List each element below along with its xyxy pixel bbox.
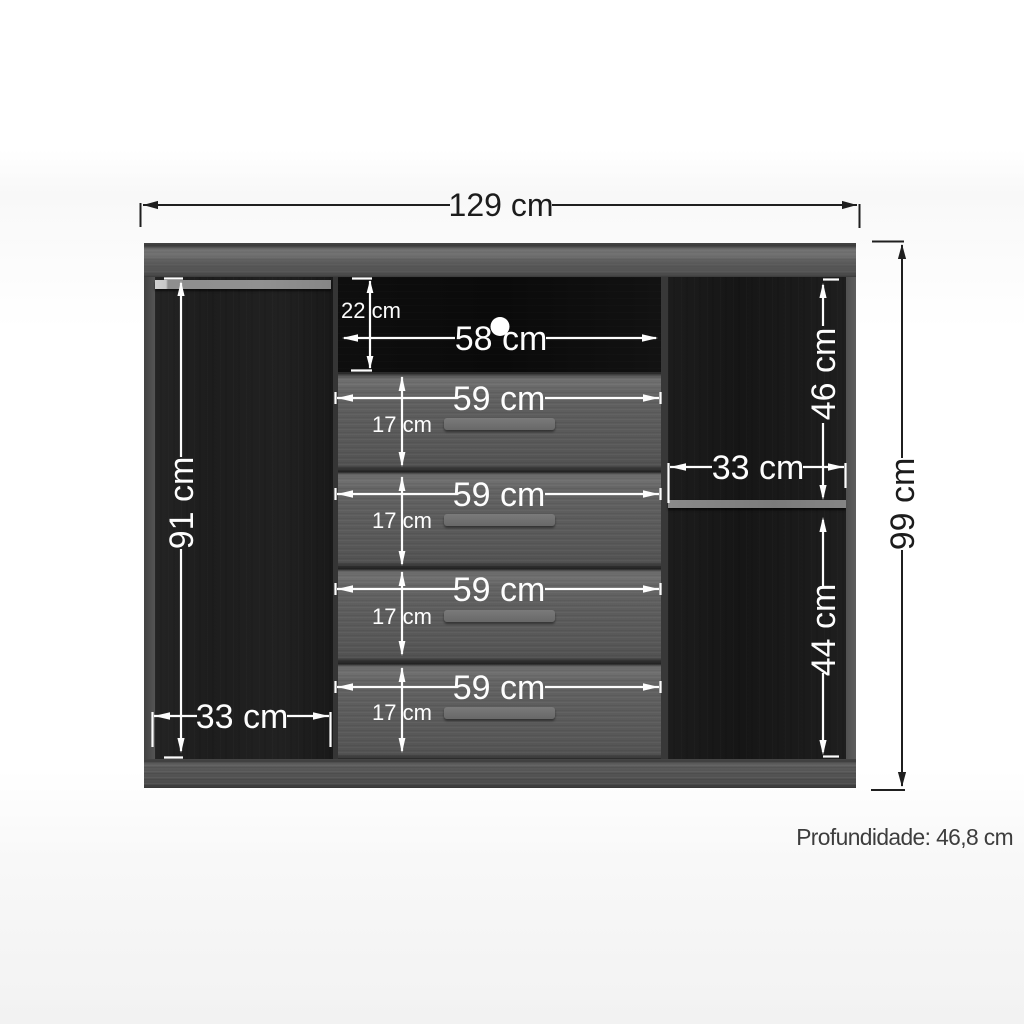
svg-text:22 cm: 22 cm xyxy=(341,298,401,323)
svg-text:44 cm: 44 cm xyxy=(805,584,843,677)
svg-text:33 cm: 33 cm xyxy=(712,449,805,487)
svg-text:17 cm: 17 cm xyxy=(372,700,432,725)
svg-text:17 cm: 17 cm xyxy=(372,604,432,629)
svg-text:59 cm: 59 cm xyxy=(453,476,546,514)
svg-text:Profundidade: 46,8 cm: Profundidade: 46,8 cm xyxy=(796,824,1013,850)
svg-text:129 cm: 129 cm xyxy=(449,187,554,223)
svg-text:59 cm: 59 cm xyxy=(453,380,546,418)
svg-text:17 cm: 17 cm xyxy=(372,508,432,533)
svg-text:91 cm: 91 cm xyxy=(163,457,201,550)
svg-text:59 cm: 59 cm xyxy=(453,669,546,707)
svg-text:46 cm: 46 cm xyxy=(805,328,843,421)
svg-text:17 cm: 17 cm xyxy=(372,412,432,437)
svg-text:59 cm: 59 cm xyxy=(453,571,546,609)
svg-text:99 cm: 99 cm xyxy=(884,458,922,551)
svg-text:33 cm: 33 cm xyxy=(196,698,289,736)
svg-text:58 cm: 58 cm xyxy=(455,320,548,358)
